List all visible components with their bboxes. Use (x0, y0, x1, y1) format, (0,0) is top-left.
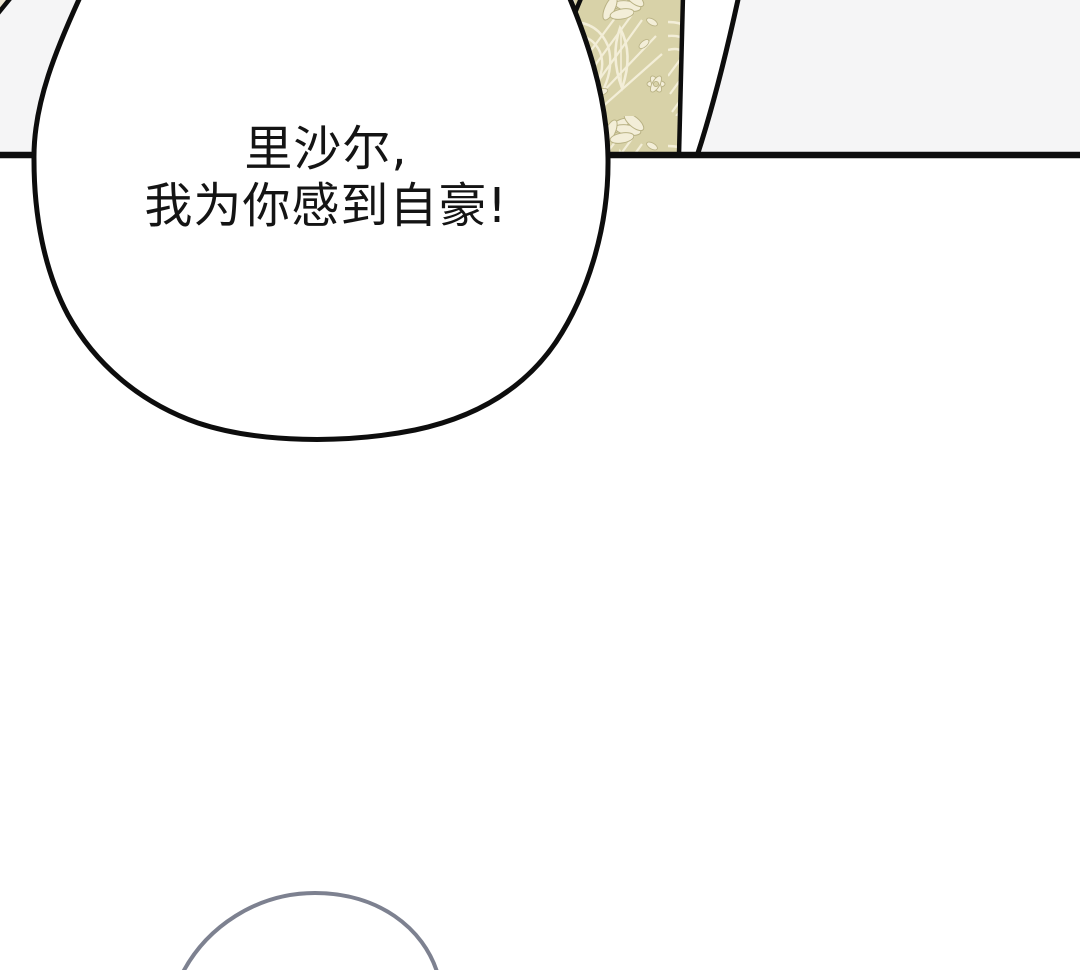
bottom-bubble-arc (180, 893, 438, 970)
speech-line-1: 里沙尔, (6, 121, 646, 178)
comic-panel: 里沙尔, 我为你感到自豪! (0, 0, 1080, 970)
speech-bubble-text: 里沙尔, 我为你感到自豪! (6, 121, 646, 235)
speech-line-2: 我为你感到自豪! (6, 178, 646, 235)
